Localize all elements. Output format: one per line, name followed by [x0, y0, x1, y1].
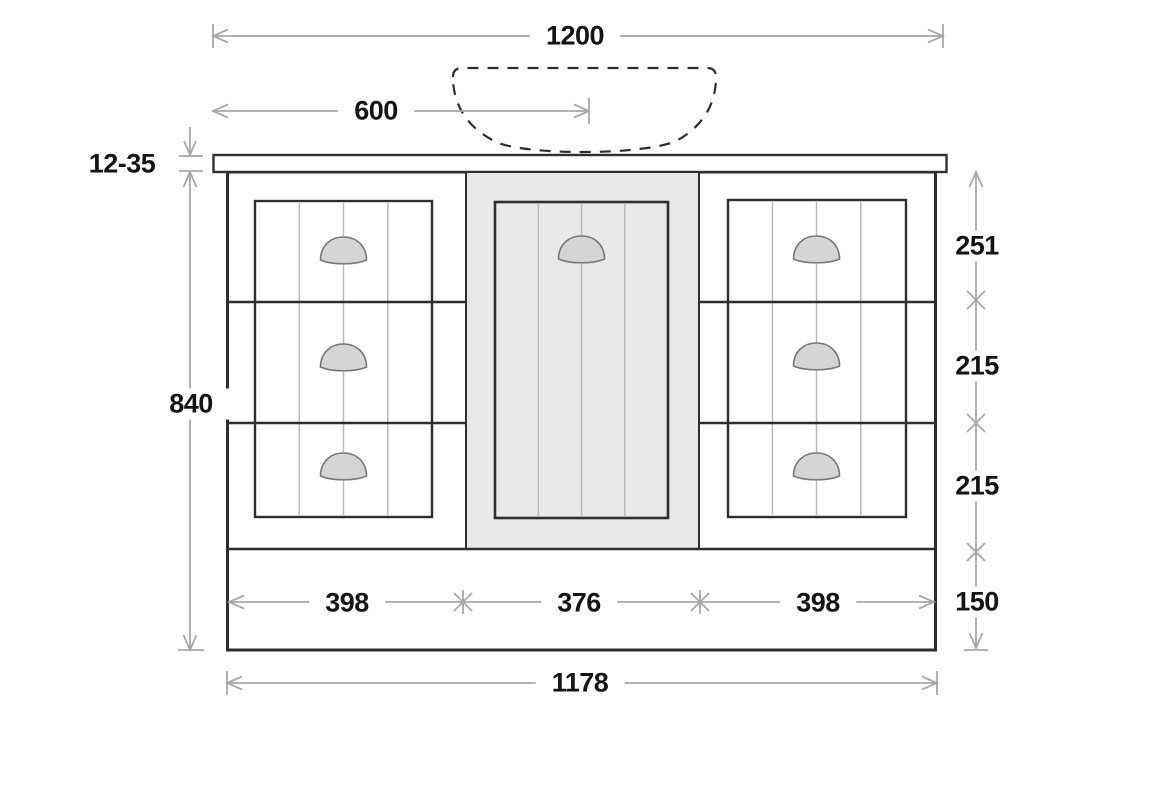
dim-label-sink-center-offset: 600 [338, 96, 414, 127]
dim-label-cabinet-height: 840 [153, 389, 229, 420]
dim-label-top-drawer-height: 251 [939, 231, 1015, 262]
dim-label-plinth-height: 150 [939, 587, 1015, 618]
dim-label-countertop-thickness: 12-35 [83, 149, 162, 180]
dim-label-middle-drawer-height: 215 [939, 351, 1015, 382]
dim-label-center-section-width: 376 [541, 588, 617, 619]
dim-label-cabinet-width: 1178 [536, 668, 625, 699]
vanity-cabinet-dimension-diagram: 1200 600 12-35 840 251 215 215 150 398 3… [0, 0, 1150, 808]
dim-label-bottom-drawer-height: 215 [939, 471, 1015, 502]
dimension-line-countertop-thickness [179, 127, 203, 171]
countertop [214, 155, 947, 172]
dim-label-right-section-width: 398 [780, 588, 856, 619]
dim-label-left-section-width: 398 [309, 588, 385, 619]
dim-label-overall-width: 1200 [530, 21, 620, 52]
